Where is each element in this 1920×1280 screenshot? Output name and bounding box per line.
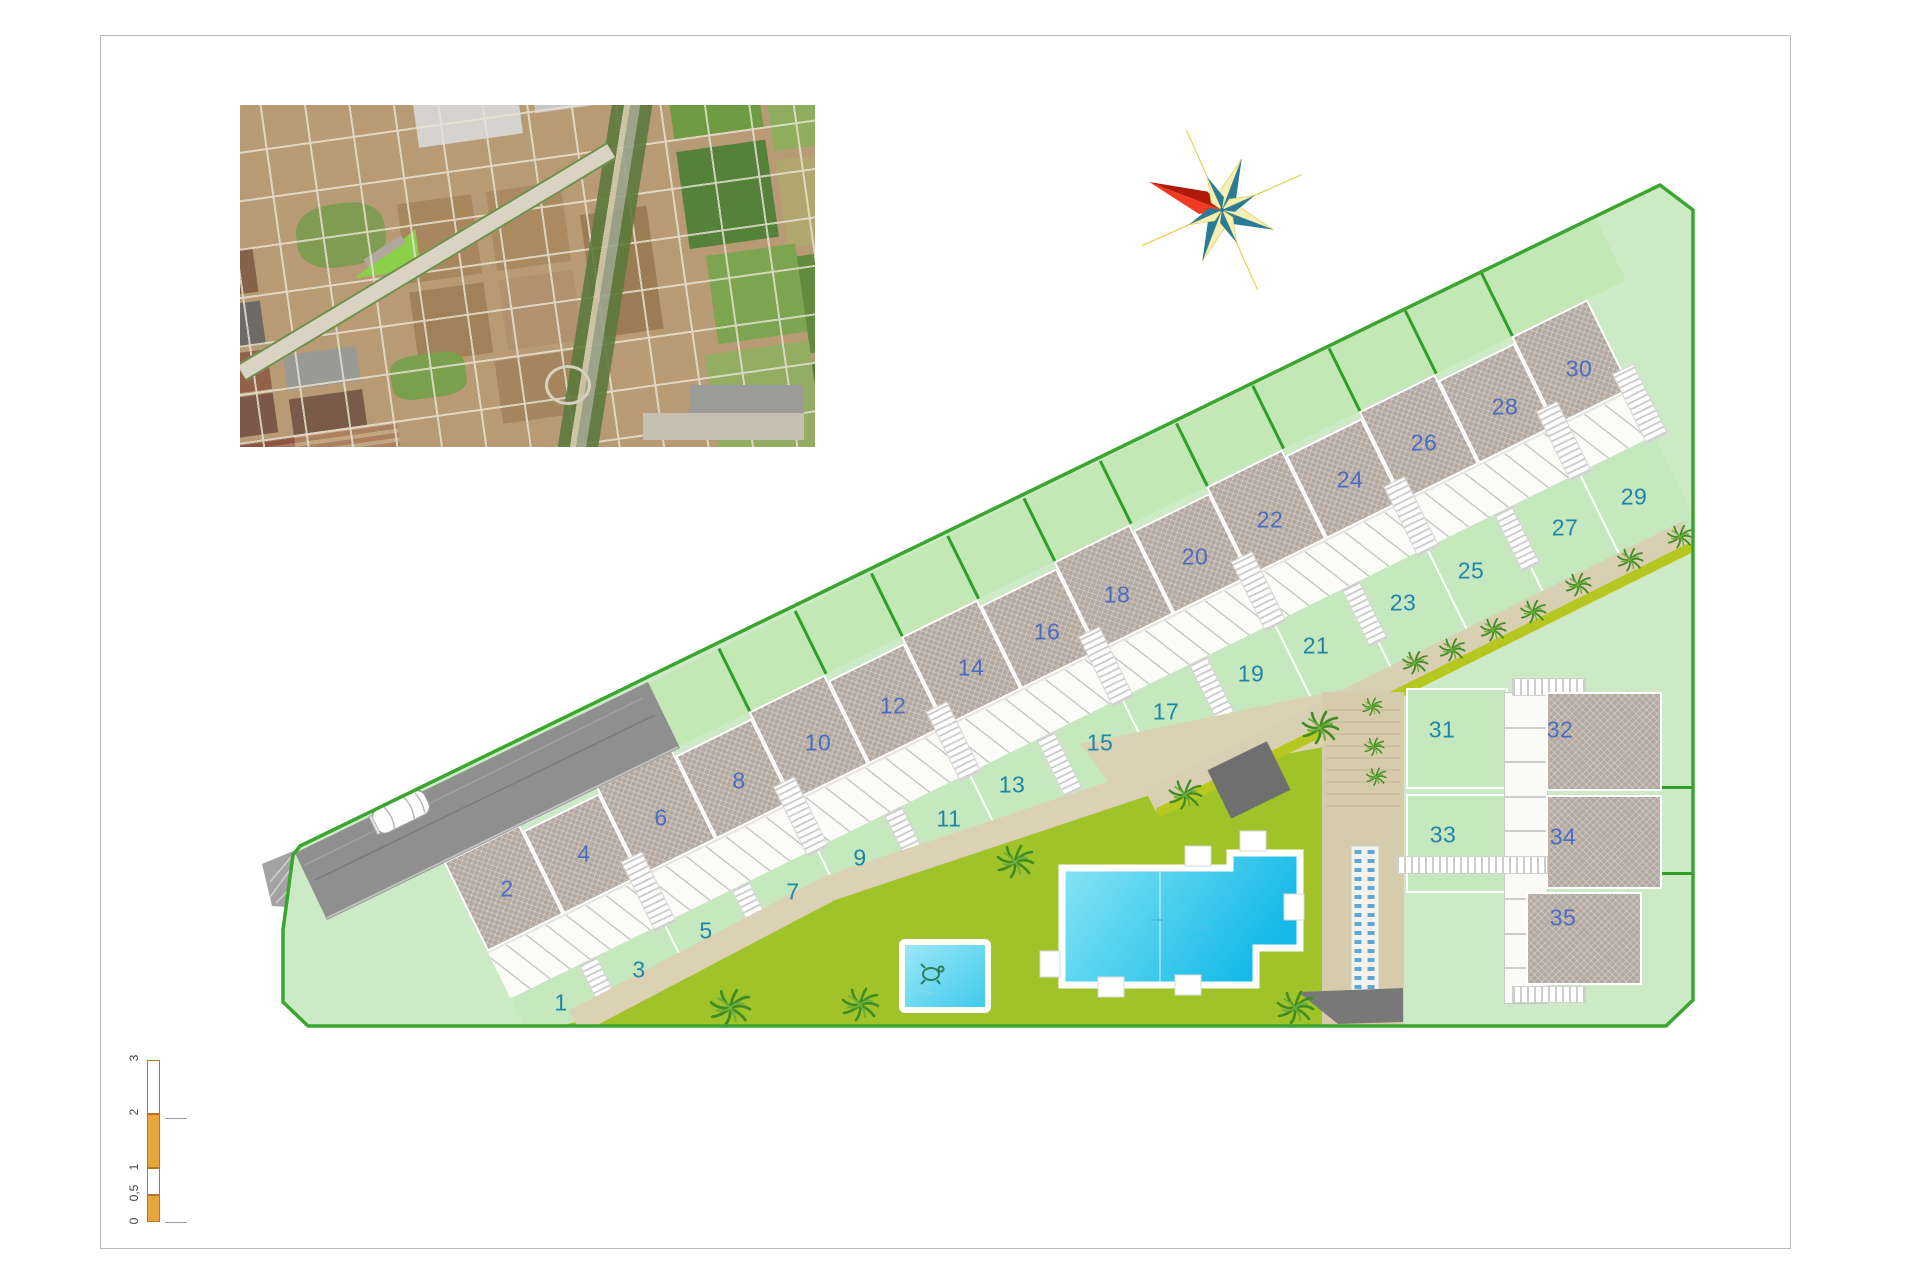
scale-label: 3 — [127, 1046, 141, 1070]
compass-rose-icon — [1142, 130, 1302, 290]
scale-label: 1 — [127, 1155, 141, 1179]
scale-label: 0,5 — [127, 1181, 141, 1205]
scale-label: 2 — [127, 1100, 141, 1124]
scale-label: 0 — [127, 1209, 141, 1233]
aerial-photo-inset — [240, 105, 815, 447]
site-plan-sheet: 1234567891011121314151617181920212223242… — [0, 0, 1920, 1280]
